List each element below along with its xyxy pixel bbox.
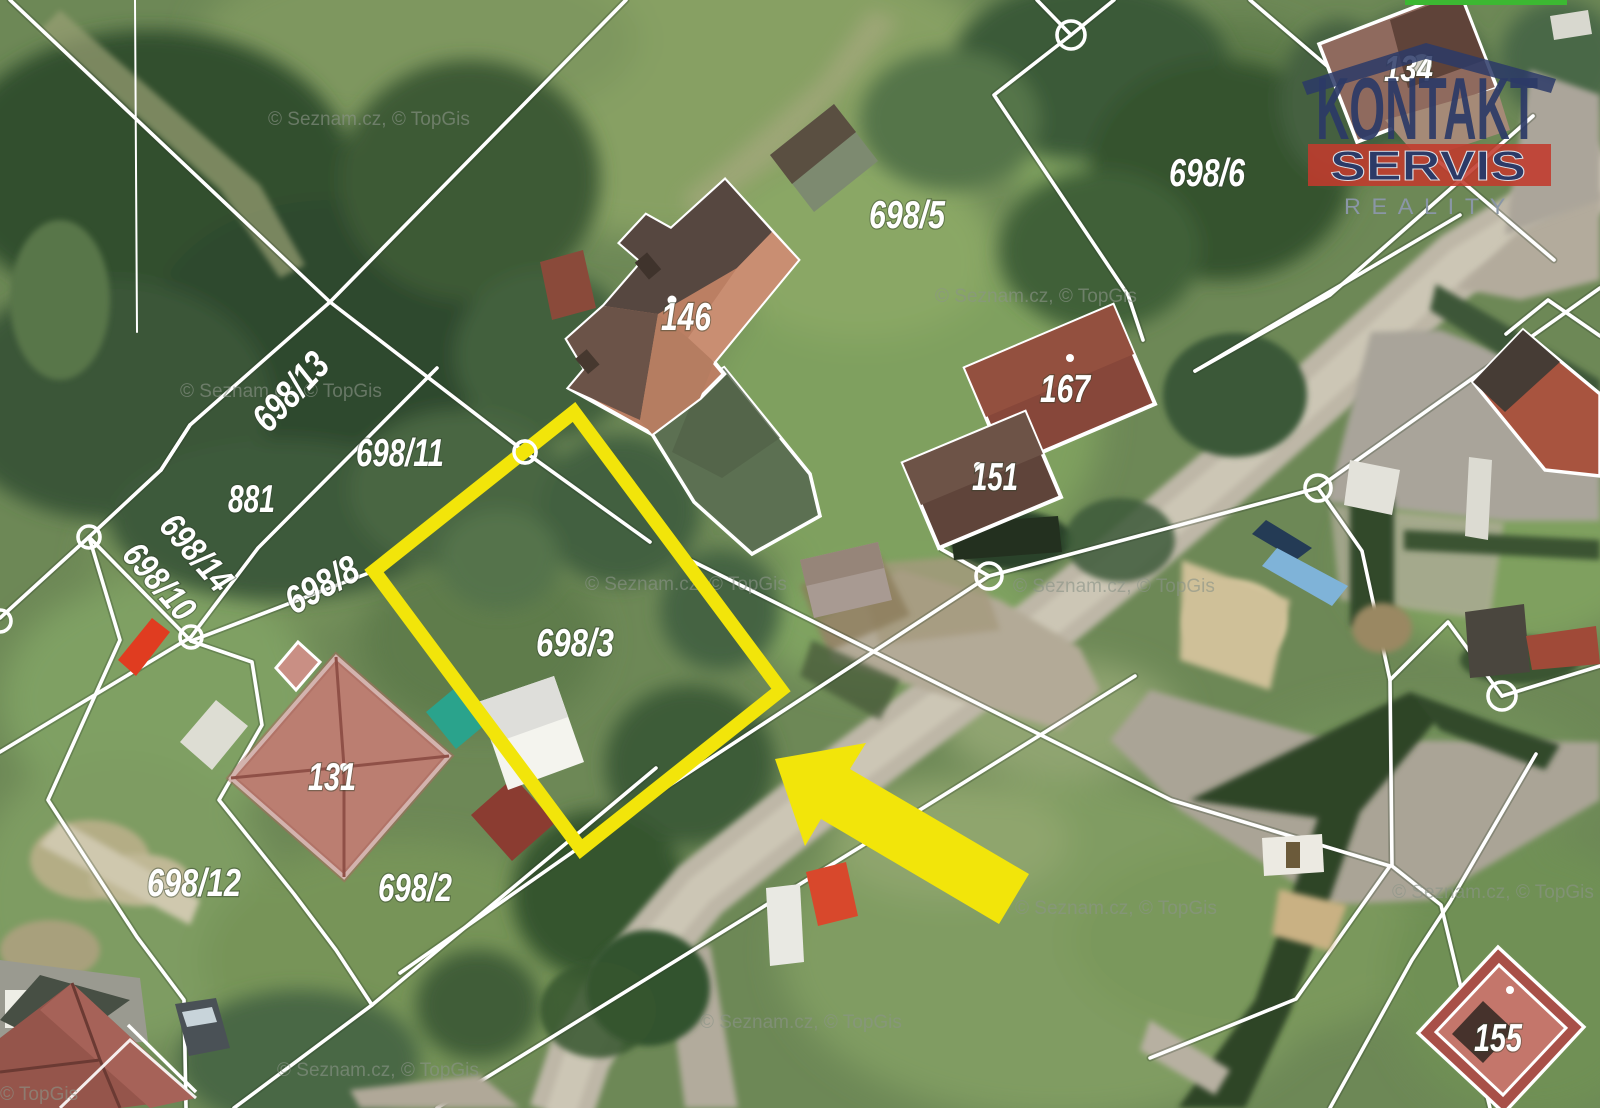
- svg-text:REALITY: REALITY: [1344, 194, 1516, 219]
- svg-text:698/3: 698/3: [536, 622, 614, 665]
- svg-text:698/6: 698/6: [1169, 151, 1245, 195]
- svg-text:151: 151: [972, 455, 1018, 499]
- svg-text:© Seznam.cz, © TopGis: © Seznam.cz, © TopGis: [1015, 898, 1217, 919]
- svg-text:146: 146: [661, 296, 712, 339]
- svg-text:© TopGis: © TopGis: [0, 1084, 78, 1105]
- svg-text:155: 155: [1474, 1017, 1523, 1060]
- svg-text:131: 131: [308, 756, 356, 799]
- svg-text:698/2: 698/2: [378, 867, 452, 910]
- svg-text:167: 167: [1040, 368, 1091, 411]
- svg-text:© Seznam.cz, © TopGis: © Seznam.cz, © TopGis: [1013, 576, 1215, 597]
- svg-text:698/11: 698/11: [356, 432, 444, 475]
- svg-text:© Seznam.cz, © TopGis: © Seznam.cz, © TopGis: [935, 286, 1137, 307]
- svg-text:© Seznam.cz, © TopGis: © Seznam.cz, © TopGis: [268, 109, 470, 130]
- svg-text:© Seznam.cz, © TopGis: © Seznam.cz, © TopGis: [277, 1060, 479, 1081]
- svg-text:© Seznam.cz, © TopGis: © Seznam.cz, © TopGis: [1392, 882, 1594, 903]
- svg-text:© Seznam.cz, © TopGis: © Seznam.cz, © TopGis: [585, 574, 787, 595]
- svg-text:© Seznam.cz, © TopGis: © Seznam.cz, © TopGis: [700, 1012, 902, 1033]
- svg-text:698/5: 698/5: [869, 193, 945, 237]
- svg-text:SERVIS: SERVIS: [1330, 142, 1526, 189]
- svg-text:881: 881: [228, 478, 275, 522]
- svg-text:698/12: 698/12: [147, 862, 241, 905]
